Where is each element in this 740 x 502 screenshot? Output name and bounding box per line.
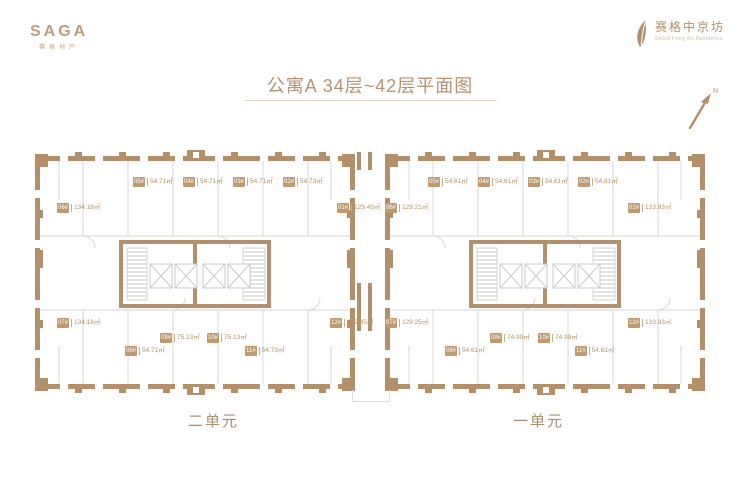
unit-label: 09# 74.99㎡ xyxy=(490,333,530,343)
unit-label: 10# 74.99㎡ xyxy=(538,333,578,343)
unit-label: 06# 129.21㎡ xyxy=(385,203,428,213)
title-underline xyxy=(245,100,497,101)
unit-label: 04# 54.61㎡ xyxy=(478,177,518,187)
unit-area: 133.93㎡ xyxy=(642,204,671,212)
project-subtext: SAGA Feng Art Residence xyxy=(655,36,725,42)
unit-area: 74.99㎡ xyxy=(504,334,530,342)
unit-label: 04# 54.71㎡ xyxy=(183,177,223,187)
unit-label: 02# 54.61㎡ xyxy=(578,177,618,187)
unit-number-badge: 12# xyxy=(628,318,640,328)
unit-number-badge: 12# xyxy=(330,318,342,328)
unit-area: 129.21㎡ xyxy=(399,204,428,212)
unit-area: 54.61㎡ xyxy=(592,178,618,186)
unit-number-badge: 03# xyxy=(233,177,245,187)
unit-label: 03# 54.61㎡ xyxy=(528,177,568,187)
unit-label: 02# 54.73㎡ xyxy=(283,177,323,187)
unit-area: 54.71㎡ xyxy=(247,178,273,186)
unit-label: 05# 54.61㎡ xyxy=(428,177,468,187)
compass-label: N xyxy=(713,88,718,95)
unit-area: 129.25㎡ xyxy=(399,319,428,327)
project-logo: 赛格中京坊 SAGA Feng Art Residence xyxy=(634,20,725,48)
unit2-caption: 二单元 xyxy=(188,410,239,431)
compass: N xyxy=(684,88,720,134)
unit-label: 06# 134.18㎡ xyxy=(57,203,100,213)
unit-area: 54.61㎡ xyxy=(542,178,568,186)
unit-number-badge: 04# xyxy=(478,177,490,187)
unit-area: 129.45㎡ xyxy=(351,204,380,212)
unit-area: 54.61㎡ xyxy=(492,178,518,186)
unit-area: 54.73㎡ xyxy=(297,178,323,186)
unit-area: 134.18㎡ xyxy=(71,204,100,212)
unit-area: 129.45㎡ xyxy=(344,319,373,327)
unit-label: 10# 75.13㎡ xyxy=(207,333,247,343)
unit-number-badge: 09# xyxy=(490,333,502,343)
unit-label: 01# 129.45㎡ xyxy=(337,203,380,213)
seam-connector xyxy=(352,390,390,402)
unit-area: 74.99㎡ xyxy=(552,334,578,342)
unit-label: 12# 129.45㎡ xyxy=(330,318,373,328)
unit-number-badge: 01# xyxy=(628,203,640,213)
unit-label: 08# 54.71㎡ xyxy=(125,346,165,356)
unit-label: 01# 133.93㎡ xyxy=(628,203,671,213)
expansion-joint xyxy=(368,152,372,170)
unit-number-badge: 08# xyxy=(125,346,137,356)
leaf-icon xyxy=(634,20,650,48)
unit-area: 54.71㎡ xyxy=(147,178,173,186)
unit-area: 54.71㎡ xyxy=(139,347,165,355)
unit-label: 05# 54.71㎡ xyxy=(133,177,173,187)
unit-area: 54.61㎡ xyxy=(589,347,615,355)
unit-number-badge: 07# xyxy=(385,318,397,328)
unit-area: 54.73㎡ xyxy=(259,347,285,355)
project-name: 赛格中京坊 xyxy=(655,20,725,34)
unit-label: 11# 54.61㎡ xyxy=(575,346,614,356)
unit-label: 09# 75.13㎡ xyxy=(160,333,200,343)
unit-area: 54.61㎡ xyxy=(459,347,485,355)
unit-number-badge: 10# xyxy=(207,333,219,343)
page-title: 公寓A 34层~42层平面图 xyxy=(0,72,740,98)
unit-number-badge: 05# xyxy=(428,177,440,187)
unit-number-badge: 05# xyxy=(133,177,145,187)
unit-number-badge: 08# xyxy=(445,346,457,356)
unit-number-badge: 10# xyxy=(538,333,550,343)
unit-area: 54.71㎡ xyxy=(197,178,223,186)
unit-number-badge: 02# xyxy=(578,177,590,187)
unit-area: 134.18㎡ xyxy=(71,319,100,327)
unit-number-badge: 07# xyxy=(57,318,69,328)
unit-number-badge: 11# xyxy=(245,346,257,356)
unit-number-badge: 06# xyxy=(57,203,69,213)
saga-logo-text: SAGA xyxy=(30,24,88,40)
unit-label: 03# 54.71㎡ xyxy=(233,177,273,187)
unit-number-badge: 04# xyxy=(183,177,195,187)
saga-logo: SAGA 赛格地产 xyxy=(30,24,88,51)
saga-logo-subtext: 赛格地产 xyxy=(30,42,88,51)
expansion-joint xyxy=(357,152,361,170)
unit1-caption: 一单元 xyxy=(513,410,564,431)
unit-number-badge: 01# xyxy=(337,203,349,213)
unit-label: 07# 129.25㎡ xyxy=(385,318,428,328)
page: SAGA 赛格地产 赛格中京坊 SAGA Feng Art Residence … xyxy=(0,0,740,502)
unit-area: 54.61㎡ xyxy=(442,178,468,186)
unit-number-badge: 06# xyxy=(385,203,397,213)
unit-area: 75.13㎡ xyxy=(221,334,247,342)
unit-number-badge: 09# xyxy=(160,333,172,343)
unit-label: 11# 54.73㎡ xyxy=(245,346,284,356)
unit-number-badge: 11# xyxy=(575,346,587,356)
unit-label: 07# 134.18㎡ xyxy=(57,318,100,328)
unit-number-badge: 03# xyxy=(528,177,540,187)
unit-label: 12# 133.93㎡ xyxy=(628,318,671,328)
unit-area: 75.13㎡ xyxy=(174,334,200,342)
unit-number-badge: 02# xyxy=(283,177,295,187)
unit-label: 08# 54.61㎡ xyxy=(445,346,485,356)
unit-area: 133.93㎡ xyxy=(642,319,671,327)
